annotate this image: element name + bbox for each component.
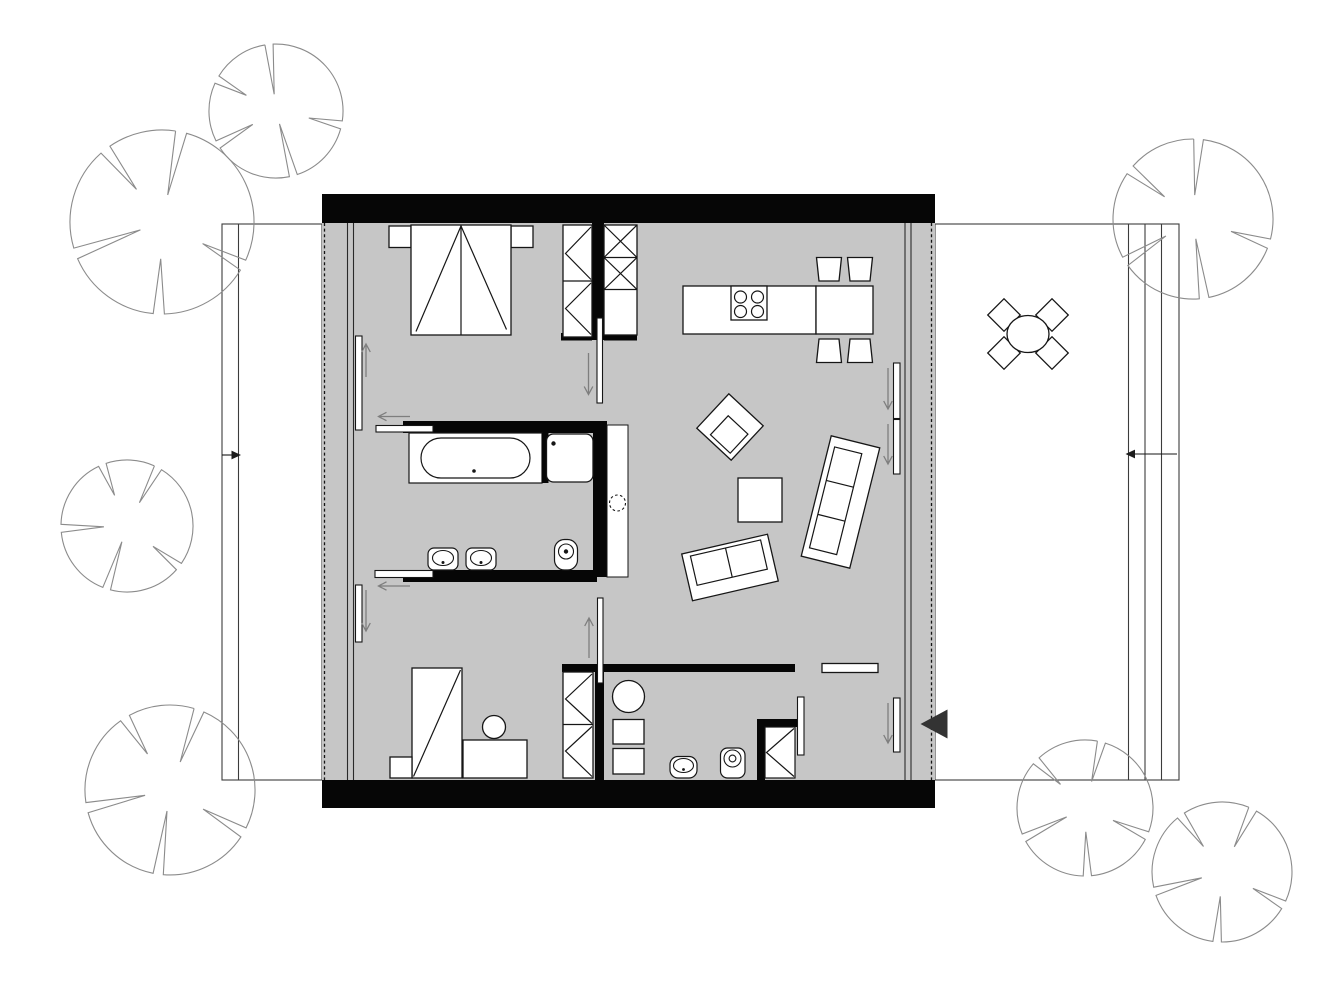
basin-dot [480, 561, 483, 564]
dining-table [816, 286, 873, 334]
desk [463, 740, 527, 778]
sliding-glass-panel [894, 698, 901, 752]
terrace-left [222, 224, 322, 780]
desk-stool [483, 716, 506, 739]
sliding-glass-panel [894, 363, 901, 419]
patio-table [1007, 316, 1049, 353]
dining-chair [817, 339, 842, 363]
dining-chair [848, 258, 873, 282]
nightstand [390, 757, 412, 778]
wall-top [322, 194, 935, 223]
sliding-glass-panel [894, 420, 901, 475]
door-leaf [798, 697, 805, 755]
sliding-glass-panel [356, 336, 363, 430]
wall-shower-top [757, 719, 797, 727]
storage-box [613, 749, 644, 775]
tree [61, 460, 193, 592]
shower-head-dot [551, 441, 555, 445]
coffee-table [738, 478, 782, 522]
wall-bath-right [593, 421, 607, 577]
pocket-door-panel [376, 426, 433, 433]
floor-plan-page [0, 0, 1333, 1000]
bedroom-main [389, 225, 533, 335]
burner [735, 291, 747, 303]
door-leaf [598, 598, 604, 683]
shower-tray [765, 727, 795, 778]
nightstand [389, 226, 411, 248]
pocket-door-panel [375, 571, 433, 578]
dining-chair [817, 258, 842, 282]
wall-wc-top [604, 664, 795, 672]
console-shelf [822, 664, 878, 673]
sliding-glass-panel [356, 585, 363, 642]
washing-machine [613, 681, 645, 713]
wardrobe-top-left [563, 225, 592, 337]
wall-bottom [322, 780, 935, 808]
burner [752, 306, 764, 318]
dining-chair [848, 339, 873, 363]
wardrobe-bottom [563, 672, 593, 778]
basin-dot [442, 561, 445, 564]
burner [735, 306, 747, 318]
tree [209, 44, 343, 178]
wall-wc-left [562, 664, 595, 672]
burner [752, 291, 764, 303]
terrace-left-deck [222, 224, 322, 780]
bathtub [421, 438, 530, 478]
wardrobe-top-right [604, 225, 637, 335]
drain-dot [472, 469, 476, 473]
tree [1152, 802, 1292, 942]
door-leaf [597, 318, 603, 403]
storage-box [613, 720, 644, 745]
shower-tray [547, 434, 594, 482]
toilet-dot [564, 549, 568, 553]
wall-shower-left [757, 727, 765, 780]
nightstand [511, 226, 533, 248]
toilet-bowl-inner [729, 755, 736, 762]
floor-plan-canvas [0, 0, 1333, 1000]
basin-dot [682, 768, 685, 771]
